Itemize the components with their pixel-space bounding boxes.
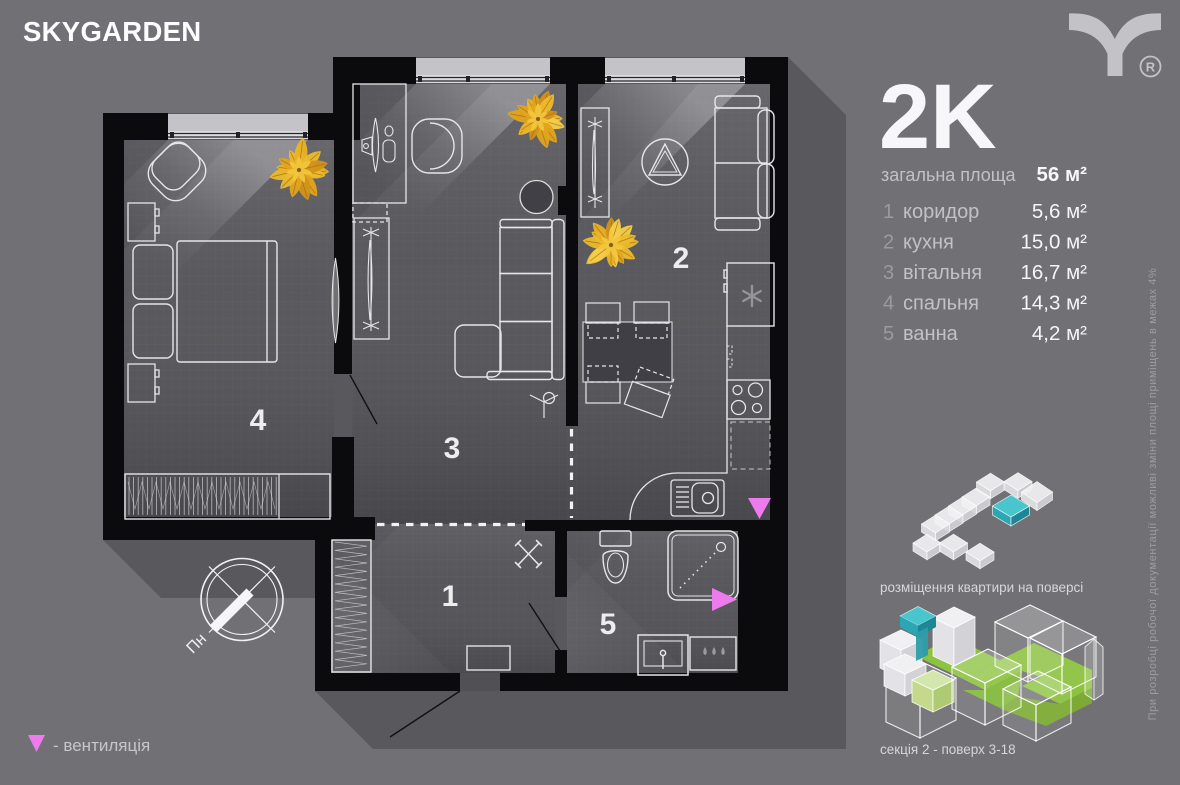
svg-text:розміщення квартири на поверсі: розміщення квартири на поверсі <box>880 580 1083 595</box>
svg-text:SKYGARDEN: SKYGARDEN <box>23 16 201 47</box>
svg-text:секція 2 - поверх 3-18: секція 2 - поверх 3-18 <box>880 742 1016 757</box>
svg-text:ванна: ванна <box>903 323 959 345</box>
svg-text:загальна площа: загальна площа <box>881 165 1017 185</box>
svg-text:4,2 м²: 4,2 м² <box>1032 322 1087 345</box>
svg-text:2: 2 <box>883 232 894 254</box>
svg-text:2K: 2K <box>879 66 997 168</box>
svg-text:R: R <box>1146 60 1156 75</box>
svg-text:3: 3 <box>883 262 894 284</box>
svg-text:вітальня: вітальня <box>903 262 982 284</box>
svg-text:5: 5 <box>883 323 894 345</box>
svg-text:4: 4 <box>883 293 894 315</box>
svg-text:1: 1 <box>883 201 894 223</box>
svg-text:спальня: спальня <box>903 293 979 315</box>
svg-text:15,0 м²: 15,0 м² <box>1020 231 1087 254</box>
svg-text:5,6 м²: 5,6 м² <box>1032 200 1087 223</box>
svg-text:- вентиляція: - вентиляція <box>53 736 150 755</box>
svg-text:При розробці робочої документа: При розробці робочої документації можлив… <box>1147 268 1159 721</box>
svg-text:3: 3 <box>444 432 461 465</box>
svg-text:56 м²: 56 м² <box>1037 163 1088 186</box>
svg-text:14,3 м²: 14,3 м² <box>1020 292 1087 315</box>
svg-text:коридор: коридор <box>903 201 979 223</box>
svg-text:2: 2 <box>673 242 690 275</box>
svg-text:4: 4 <box>250 404 267 437</box>
svg-text:кухня: кухня <box>903 232 954 254</box>
svg-text:16,7 м²: 16,7 м² <box>1020 261 1087 284</box>
svg-text:1: 1 <box>442 580 459 613</box>
svg-text:5: 5 <box>600 608 617 641</box>
